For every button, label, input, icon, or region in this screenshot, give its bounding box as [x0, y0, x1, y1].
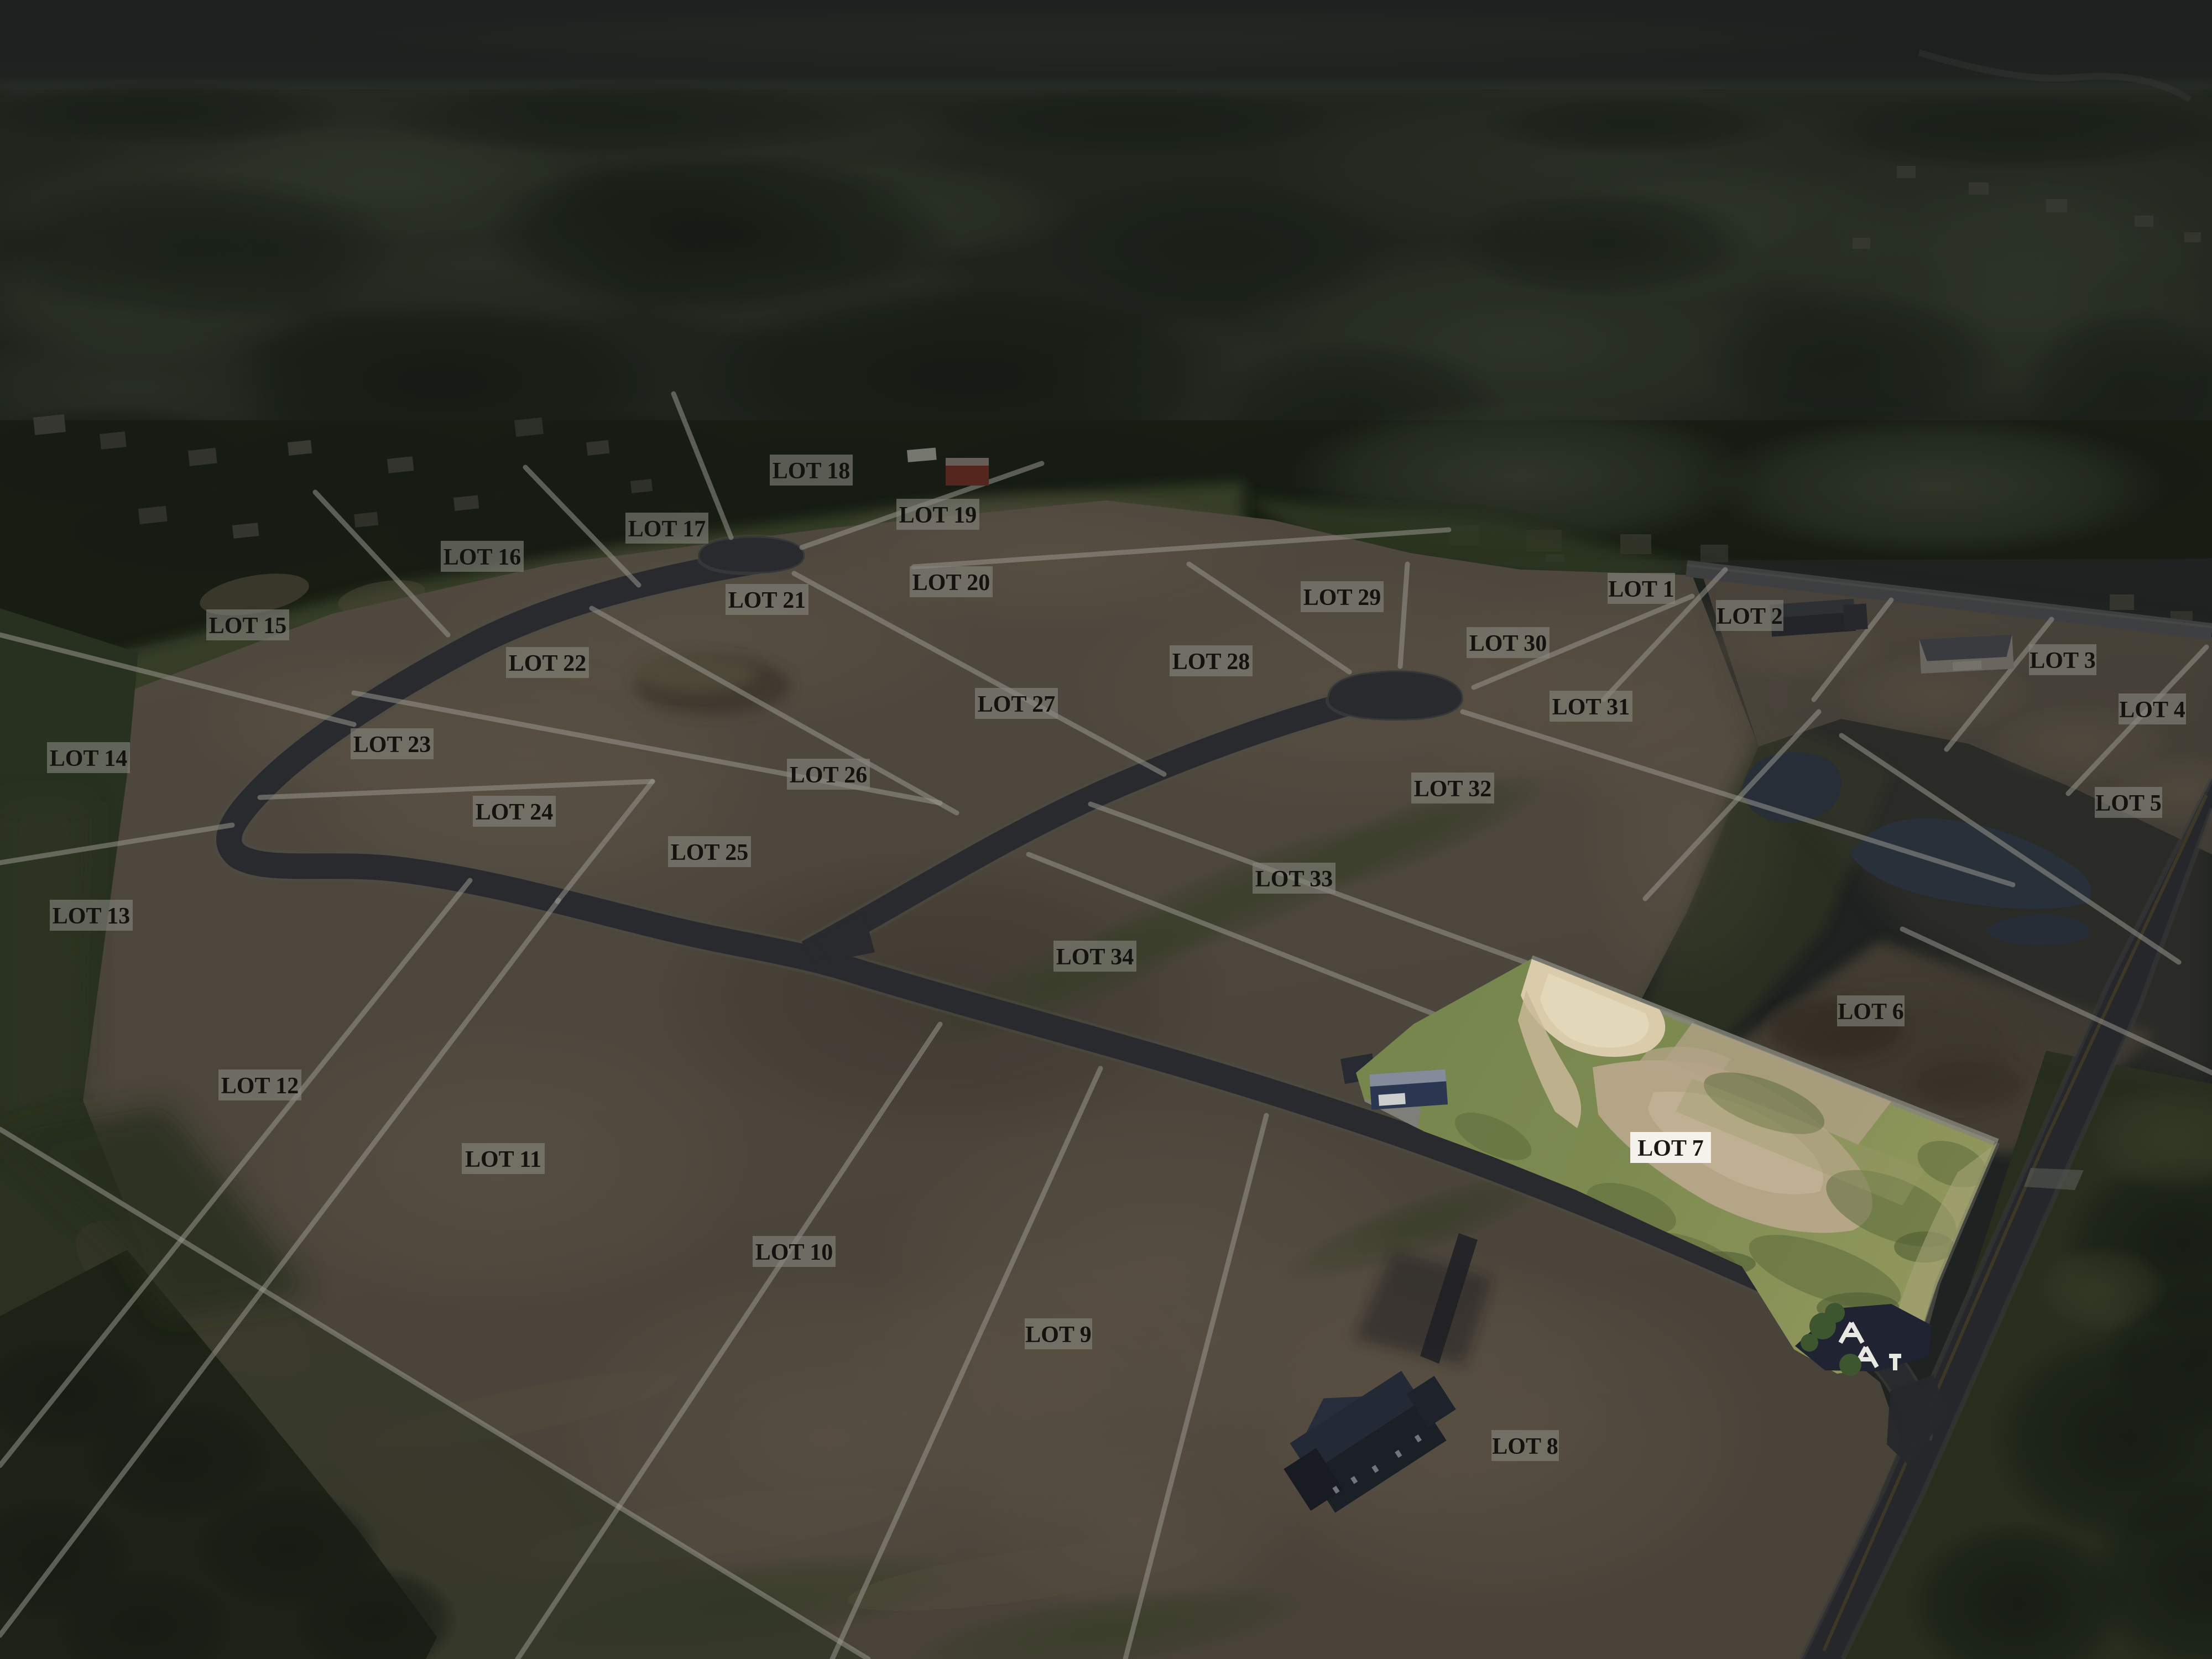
- svg-text:LOT 16: LOT 16: [444, 545, 521, 570]
- svg-text:LOT 4: LOT 4: [2119, 697, 2185, 723]
- svg-text:LOT 17: LOT 17: [628, 517, 706, 542]
- svg-text:LOT 14: LOT 14: [50, 746, 127, 771]
- svg-text:LOT 5: LOT 5: [2095, 791, 2161, 816]
- svg-text:LOT 20: LOT 20: [912, 570, 990, 596]
- svg-text:LOT 27: LOT 27: [978, 692, 1055, 717]
- svg-text:LOT 21: LOT 21: [728, 588, 806, 613]
- svg-text:LOT 33: LOT 33: [1255, 867, 1333, 892]
- svg-text:LOT 7: LOT 7: [1637, 1136, 1703, 1161]
- svg-text:LOT 34: LOT 34: [1056, 945, 1134, 970]
- svg-text:LOT 32: LOT 32: [1414, 776, 1491, 802]
- svg-text:LOT 22: LOT 22: [509, 651, 586, 676]
- svg-text:LOT 12: LOT 12: [221, 1073, 299, 1099]
- svg-text:LOT 3: LOT 3: [2030, 648, 2095, 674]
- svg-text:LOT 25: LOT 25: [671, 840, 748, 865]
- svg-text:LOT 29: LOT 29: [1303, 585, 1381, 611]
- svg-text:LOT 26: LOT 26: [790, 763, 867, 788]
- svg-text:LOT 23: LOT 23: [353, 732, 431, 758]
- svg-text:LOT 11: LOT 11: [465, 1147, 541, 1172]
- svg-text:LOT 1: LOT 1: [1608, 577, 1674, 602]
- svg-text:LOT 15: LOT 15: [209, 613, 286, 639]
- svg-text:LOT 8: LOT 8: [1492, 1434, 1558, 1459]
- svg-text:LOT 9: LOT 9: [1025, 1322, 1091, 1348]
- svg-text:LOT 13: LOT 13: [53, 904, 130, 929]
- svg-text:LOT 30: LOT 30: [1469, 631, 1547, 656]
- svg-text:LOT 2: LOT 2: [1717, 604, 1782, 629]
- svg-text:LOT 31: LOT 31: [1552, 695, 1630, 720]
- svg-text:LOT 19: LOT 19: [899, 503, 977, 528]
- svg-text:LOT 24: LOT 24: [476, 800, 553, 825]
- svg-text:LOT 6: LOT 6: [1838, 999, 1903, 1025]
- svg-text:LOT 28: LOT 28: [1172, 649, 1250, 675]
- svg-text:LOT 10: LOT 10: [755, 1240, 833, 1265]
- svg-text:LOT 18: LOT 18: [773, 458, 850, 484]
